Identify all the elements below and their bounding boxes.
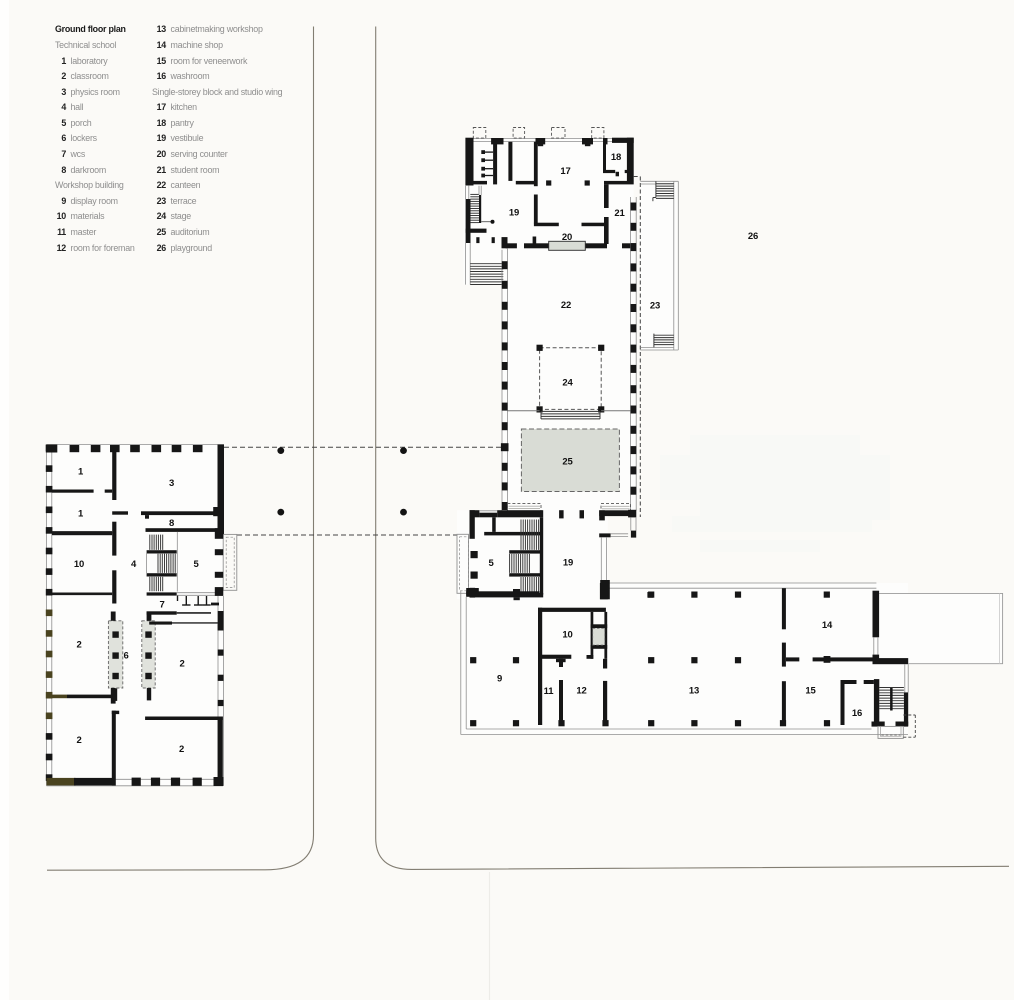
svg-text:22: 22	[561, 300, 571, 311]
svg-text:15: 15	[805, 685, 816, 696]
svg-text:19: 19	[509, 207, 519, 218]
svg-text:16: 16	[852, 708, 862, 719]
svg-text:8: 8	[169, 518, 174, 529]
svg-text:11: 11	[544, 686, 555, 697]
svg-text:10: 10	[562, 629, 572, 640]
svg-text:2: 2	[179, 658, 184, 669]
svg-text:10: 10	[74, 559, 84, 570]
svg-text:12: 12	[576, 685, 586, 696]
svg-text:17: 17	[560, 166, 570, 177]
svg-text:20: 20	[562, 232, 572, 243]
svg-text:24: 24	[562, 377, 573, 388]
svg-text:25: 25	[562, 456, 573, 467]
svg-text:19: 19	[563, 557, 573, 568]
svg-text:26: 26	[748, 231, 758, 242]
svg-text:21: 21	[614, 208, 625, 219]
svg-text:18: 18	[611, 152, 621, 163]
svg-text:7: 7	[159, 599, 164, 610]
svg-text:2: 2	[179, 744, 184, 755]
svg-text:13: 13	[689, 685, 699, 696]
svg-text:9: 9	[497, 673, 502, 684]
svg-text:3: 3	[169, 478, 174, 489]
svg-text:23: 23	[650, 300, 660, 311]
svg-text:2: 2	[76, 639, 81, 650]
svg-text:14: 14	[822, 620, 833, 631]
svg-text:6: 6	[123, 650, 128, 661]
svg-text:2: 2	[76, 735, 81, 746]
